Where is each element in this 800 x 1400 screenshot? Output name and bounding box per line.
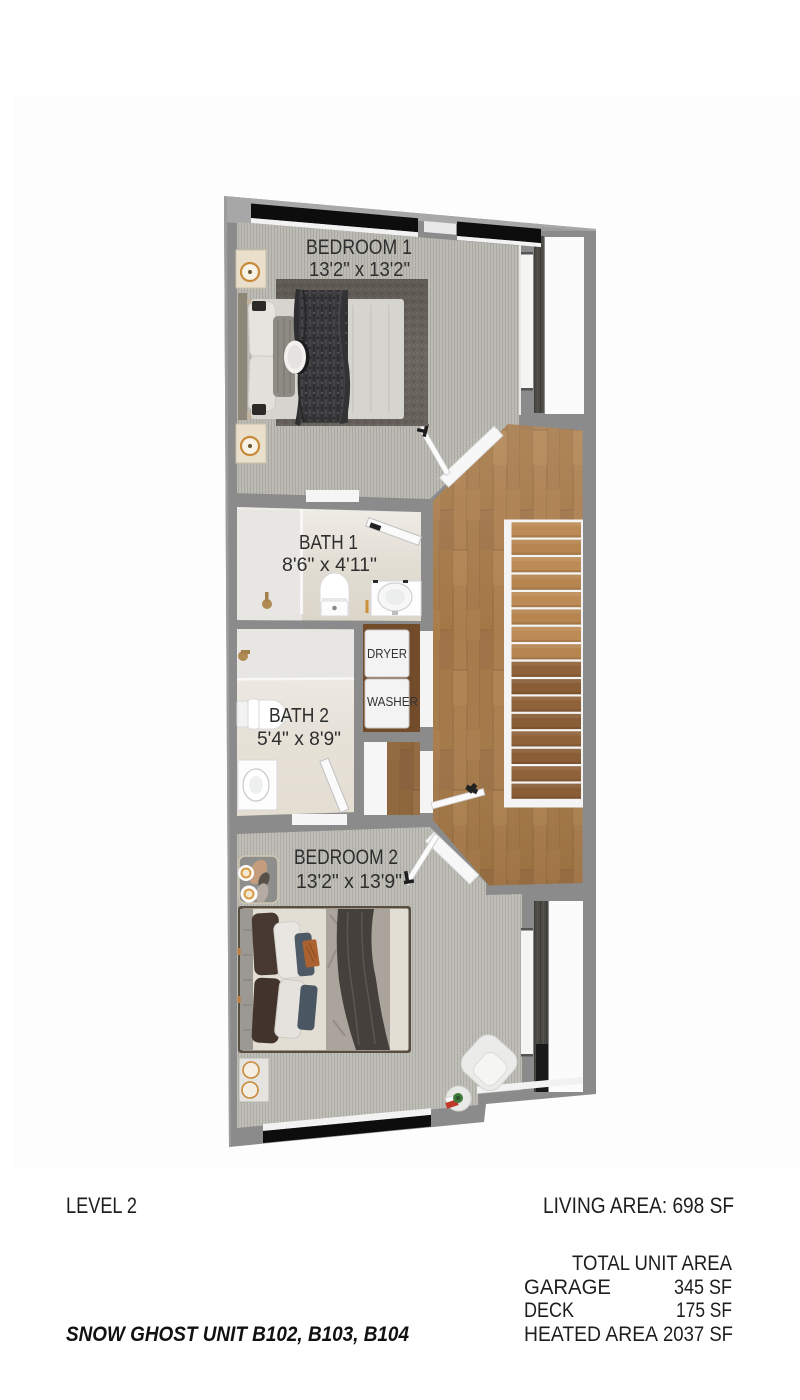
svg-text:DECK: DECK [524, 1299, 574, 1322]
svg-text:345 SF: 345 SF [674, 1276, 732, 1299]
svg-text:BATH 2: BATH 2 [269, 705, 329, 727]
svg-text:2037 SF: 2037 SF [663, 1323, 733, 1346]
svg-text:13'2" x 13'9": 13'2" x 13'9" [296, 871, 402, 893]
svg-text:WASHER: WASHER [367, 695, 418, 709]
svg-text:LEVEL 2: LEVEL 2 [66, 1193, 137, 1218]
svg-text:5'4" x 8'9": 5'4" x 8'9" [257, 729, 341, 750]
svg-text:DRYER: DRYER [367, 647, 407, 661]
svg-text:BATH 1: BATH 1 [299, 532, 358, 554]
svg-text:13'2" x 13'2": 13'2" x 13'2" [309, 259, 410, 281]
svg-text:8'6" x 4'11": 8'6" x 4'11" [282, 555, 377, 576]
svg-text:HEATED AREA: HEATED AREA [524, 1323, 658, 1346]
svg-text:TOTAL UNIT AREA: TOTAL UNIT AREA [572, 1252, 732, 1275]
svg-text:GARAGE: GARAGE [524, 1276, 611, 1299]
svg-text:BEDROOM 2: BEDROOM 2 [294, 846, 398, 869]
svg-text:LIVING AREA: 698 SF: LIVING AREA: 698 SF [543, 1193, 734, 1218]
svg-text:SNOW GHOST UNIT B102, B103, B1: SNOW GHOST UNIT B102, B103, B104 [66, 1323, 409, 1346]
svg-text:BEDROOM 1: BEDROOM 1 [306, 236, 412, 259]
svg-text:175 SF: 175 SF [676, 1299, 732, 1322]
